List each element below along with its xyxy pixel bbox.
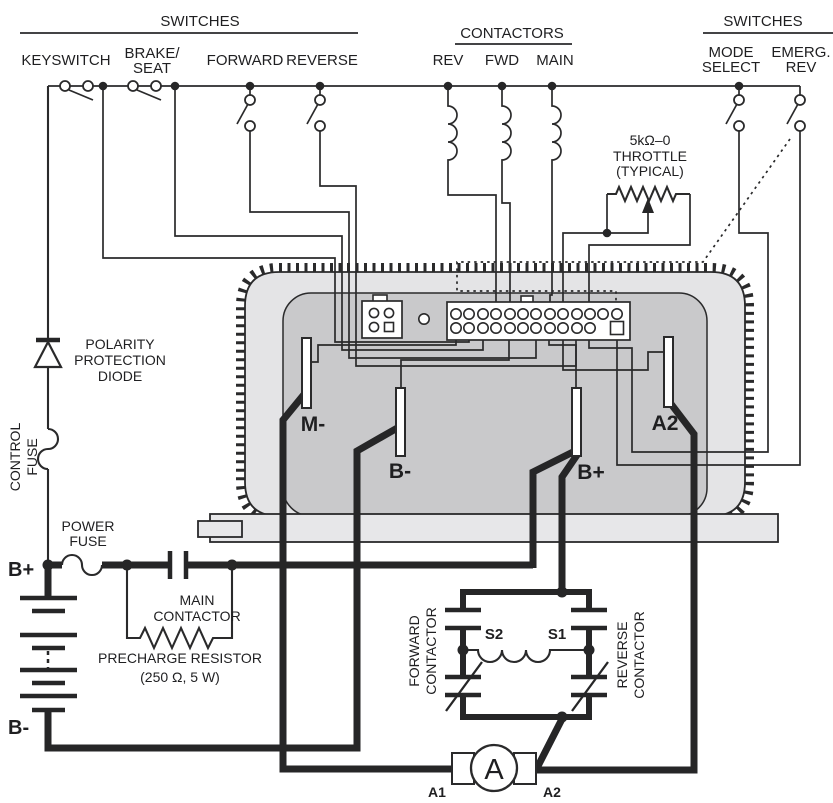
- junction-dot: [316, 82, 325, 91]
- label-main-contactor-line2: CONTACTOR: [153, 608, 240, 624]
- label-throttle-line2: THROTTLE: [613, 148, 687, 164]
- junction-dot: [43, 560, 54, 571]
- label-throttle-line3: (TYPICAL): [616, 163, 684, 179]
- label-main-contactor-line1: MAIN: [180, 592, 215, 608]
- label-reverse: REVERSE: [286, 52, 358, 69]
- label-forward-contactor-line2: CONTACTOR: [423, 607, 439, 694]
- label-throttle-line1: 5kΩ–0: [630, 132, 671, 148]
- terminal-blade-b-plus: [572, 388, 581, 456]
- control-fuse-symbol: [38, 429, 58, 469]
- switches-left-title: SWITCHES: [160, 13, 239, 30]
- pin-connector-24: [447, 296, 630, 340]
- polarity-diode-symbol: [35, 342, 61, 367]
- label-power-fuse-line2: FUSE: [69, 533, 106, 549]
- label-mode-line2: SELECT: [702, 59, 760, 76]
- junction-dot: [246, 82, 255, 91]
- label-brake-line2: SEAT: [133, 60, 171, 77]
- label-diode-line3: DIODE: [98, 368, 142, 384]
- terminal-blade-m-minus: [302, 338, 311, 408]
- forward-reverse-bridge: [445, 587, 608, 723]
- label-rev-coil: REV: [433, 52, 464, 69]
- field-winding-coil: [463, 650, 589, 662]
- label-motor-armature: A: [484, 754, 504, 786]
- junction-dot: [122, 560, 133, 571]
- label-precharge-line2: (250 Ω, 5 W): [140, 669, 220, 685]
- label-control-fuse-line2: FUSE: [24, 438, 40, 475]
- label-main-coil: MAIN: [536, 52, 574, 69]
- label-terminal-a2: A2: [652, 412, 679, 435]
- controller-base-plate-lip: [198, 521, 242, 537]
- switches-right-title: SWITCHES: [723, 13, 802, 30]
- throttle-resistor-symbol: [607, 187, 690, 201]
- label-motor-a1: A1: [428, 784, 446, 800]
- junction-dot: [498, 82, 507, 91]
- label-s2: S2: [485, 626, 503, 643]
- label-battery-negative: B-: [8, 717, 29, 739]
- junction-dot: [227, 560, 238, 571]
- reverse-switch-symbol: [307, 95, 325, 131]
- connector-pin: [369, 322, 378, 331]
- label-diode-line1: POLARITY: [85, 336, 155, 352]
- connector-pin: [369, 308, 378, 317]
- label-control-fuse-line1: CONTROL: [7, 423, 23, 492]
- junction-dot: [603, 229, 612, 238]
- junction-dot: [735, 82, 744, 91]
- connector-pin-square: [385, 323, 394, 332]
- label-forward-contactor-line1: FORWARD: [406, 615, 422, 687]
- label-battery-positive: B+: [8, 559, 34, 581]
- contactors-title: CONTACTORS: [460, 25, 564, 42]
- mode-select-switch-symbol: [726, 95, 744, 131]
- label-reverse-contactor-line2: CONTACTOR: [631, 611, 647, 698]
- junction-dot: [444, 82, 453, 91]
- terminal-blade-b-minus: [396, 388, 405, 456]
- connector-pin: [384, 308, 393, 317]
- throttle-wiper-arrow-icon: [642, 198, 654, 213]
- label-motor-a2: A2: [543, 784, 561, 800]
- label-forward: FORWARD: [207, 52, 284, 69]
- junction-dot: [548, 82, 557, 91]
- keyswitch-symbol: [60, 81, 93, 100]
- label-terminal-b-plus: B+: [577, 461, 604, 484]
- connector-pin-square: [611, 322, 624, 335]
- label-fwd-coil: FWD: [485, 52, 519, 69]
- cable-bridge-to-a2: [537, 719, 562, 768]
- label-terminal-b-minus: B-: [389, 460, 411, 483]
- junction-dot: [171, 82, 180, 91]
- label-diode-line2: PROTECTION: [74, 352, 166, 368]
- power-fuse-symbol: [62, 555, 102, 575]
- battery-symbol: [20, 565, 77, 710]
- label-emerg-line2: REV: [786, 59, 817, 76]
- label-s1: S1: [548, 626, 566, 643]
- junction-dot: [99, 82, 108, 91]
- label-precharge-line1: PRECHARGE RESISTOR: [98, 650, 262, 666]
- logic-connector-4pin: [362, 295, 402, 338]
- terminal-blade-a2: [664, 337, 673, 407]
- label-keyswitch: KEYSWITCH: [21, 52, 110, 69]
- label-terminal-m-minus: M-: [301, 413, 326, 436]
- brake-seat-switch-symbol: [128, 81, 161, 100]
- wiring-diagram: SWITCHES KEYSWITCH BRAKE/ SEAT FORWARD R…: [0, 0, 833, 803]
- mounting-hole: [419, 314, 429, 324]
- emerg-rev-switch-symbol: [787, 95, 805, 131]
- label-power-fuse-line1: POWER: [62, 518, 115, 534]
- forward-switch-symbol: [237, 95, 255, 131]
- label-reverse-contactor-line1: REVERSE: [614, 622, 630, 689]
